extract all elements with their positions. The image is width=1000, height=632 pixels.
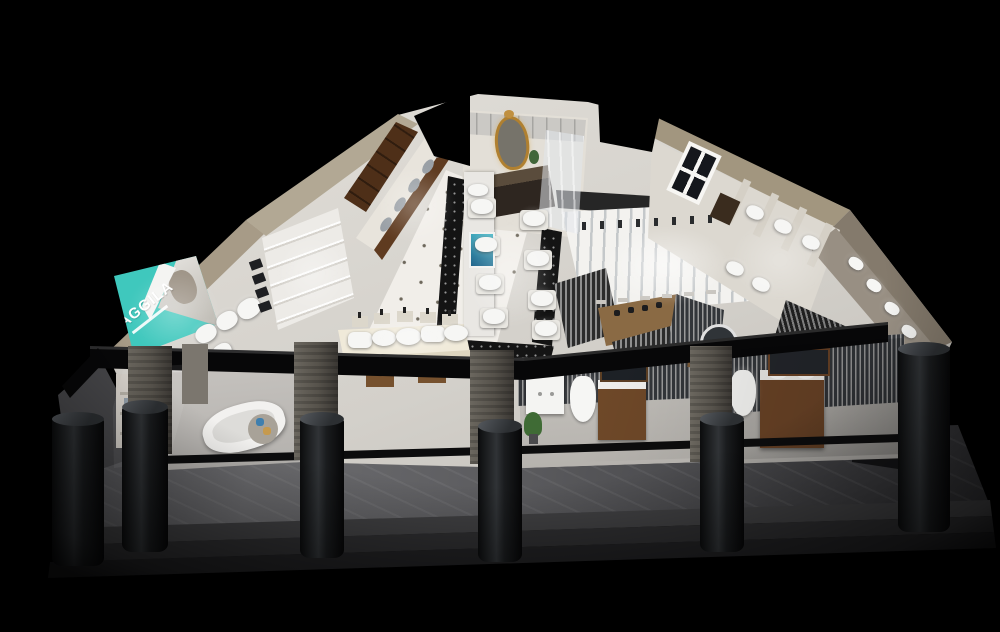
shelf-faucet-item [642, 305, 648, 311]
column-top [700, 412, 744, 426]
countertop-basin [421, 326, 445, 342]
showroom-3d-render: AGGILA [0, 0, 1000, 632]
shower-tray [618, 298, 628, 302]
exterior-column [300, 418, 344, 558]
column-basin [468, 184, 488, 196]
shower-tray [662, 294, 672, 298]
exterior-column [52, 418, 104, 566]
column-top [478, 419, 522, 433]
pedestal-toilet [523, 211, 545, 226]
storefront-pillar-small [182, 344, 208, 404]
countertop-basin [396, 328, 421, 345]
riser-faucet [380, 309, 383, 315]
shower-head [654, 218, 658, 226]
column-top [898, 342, 950, 356]
shower-head [690, 216, 694, 224]
potted-plant [529, 150, 539, 164]
pedestal-toilet [527, 251, 549, 266]
shower-head [672, 217, 676, 225]
shelf-faucet-item [614, 310, 620, 316]
shower-head [636, 219, 640, 227]
exterior-column [478, 425, 522, 562]
column-top [300, 412, 344, 426]
exterior-column [700, 418, 744, 552]
countertop-basin [372, 330, 396, 346]
pedestal-toilet [475, 237, 497, 252]
riser-faucet [403, 307, 406, 313]
pedestal-toilet [479, 275, 501, 290]
shower-head [582, 222, 586, 230]
pedestal-toilet [483, 309, 505, 324]
shower-tray [684, 292, 694, 296]
pedestal-toilet [471, 199, 493, 214]
column-top [52, 412, 104, 426]
shower-tray [596, 300, 606, 304]
countertop-basin [444, 325, 468, 341]
shelf-faucet-item [628, 307, 634, 313]
exterior-column [122, 406, 168, 552]
column-top [122, 400, 168, 414]
riser-faucet [448, 310, 451, 316]
pedestal-toilet [531, 291, 553, 306]
riser-faucet [426, 308, 429, 314]
shower-tray [640, 296, 650, 300]
shower-tray [706, 290, 716, 294]
pedestal-toilet [535, 321, 557, 336]
countertop-basin [348, 332, 372, 348]
shelf-faucet-item [656, 302, 662, 308]
shower-head [600, 221, 604, 229]
riser-faucet [358, 312, 361, 318]
shower-head [618, 220, 622, 228]
exterior-column [898, 348, 950, 532]
mirror-crown-ornament [504, 110, 514, 118]
